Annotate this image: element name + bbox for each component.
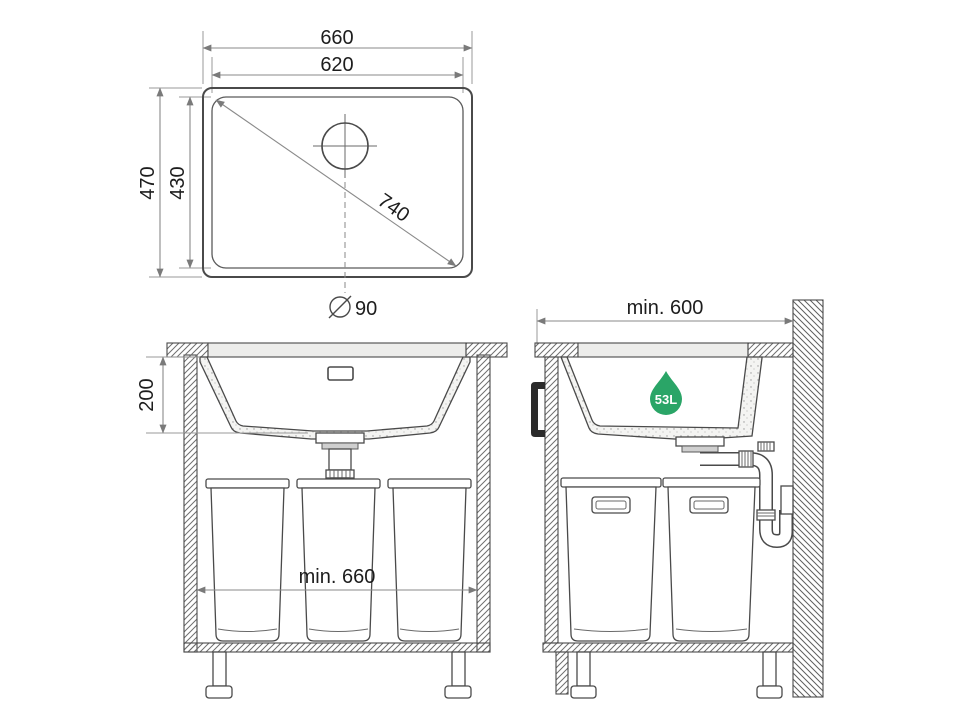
drain-gasket [322, 443, 358, 449]
bin-lid [663, 478, 760, 487]
inner-depth-label: 430 [167, 166, 189, 199]
capacity-badge: 53L [650, 371, 682, 415]
dimension-min-cabinet-depth: min. 600 [537, 297, 793, 345]
drain-diameter-callout: 90 [329, 296, 377, 320]
wall-pipe-plate [781, 486, 793, 514]
capacity-label: 53L [655, 392, 677, 407]
bin-handle [690, 497, 728, 513]
bin-lid [206, 479, 289, 488]
bin-lid [297, 479, 380, 488]
cabinet-door-panel [545, 357, 558, 643]
diameter-icon-slash [329, 296, 351, 318]
drain-gasket [682, 446, 718, 452]
cabinet-leg [213, 652, 226, 686]
leg-foot [757, 686, 782, 698]
min-cabinet-width-label: min. 660 [299, 566, 376, 588]
drain-diameter-label: 90 [355, 298, 377, 320]
plinth-panel [556, 652, 568, 694]
bin-body [393, 488, 466, 641]
leg-foot [571, 686, 596, 698]
drain-icon [313, 114, 377, 178]
cabinet-right-wall [477, 355, 490, 652]
cabinet-bottom-panel [184, 643, 490, 652]
bowl-depth-label: 200 [136, 378, 158, 411]
countertop-right-section [466, 343, 507, 357]
countertop-left-section [167, 343, 208, 357]
drain-flange [316, 433, 364, 443]
countertop-front-edge [208, 343, 466, 357]
bin-body [211, 488, 284, 641]
overflow-icon [328, 367, 353, 380]
drawing-canvas: 660 620 470 430 740 [0, 0, 960, 720]
drain-flange [676, 437, 724, 446]
pipe-stub-fitting [758, 442, 774, 451]
bin-lid [561, 478, 661, 487]
waste-bin [388, 479, 471, 641]
waste-bin [206, 479, 289, 641]
countertop-left-section [535, 343, 578, 357]
drain-tailpiece [329, 449, 351, 470]
waste-bin [561, 478, 661, 641]
top-view: 660 620 470 430 740 [137, 27, 472, 320]
countertop-span [578, 343, 748, 357]
side-view: min. 600 53L [531, 297, 823, 698]
diagonal-label: 740 [373, 190, 413, 227]
outer-depth-label: 470 [137, 166, 159, 199]
inner-width-label: 620 [320, 54, 353, 76]
waste-bin [663, 478, 760, 641]
min-cabinet-depth-label: min. 600 [627, 297, 704, 319]
cabinet-leg [763, 652, 776, 686]
cabinet-left-wall [184, 355, 197, 652]
leg-foot [445, 686, 471, 698]
door-handle-icon [531, 382, 545, 437]
dimension-inner-depth: 430 [167, 97, 211, 268]
bin-handle [592, 497, 630, 513]
cabinet-leg [452, 652, 465, 686]
front-view: 200 min. 660 [136, 343, 507, 698]
cabinet-leg [577, 652, 590, 686]
sink-technical-drawing: 660 620 470 430 740 [0, 0, 960, 720]
countertop-right-section [748, 343, 793, 357]
cabinet-bottom-panel [543, 643, 793, 652]
leg-foot [206, 686, 232, 698]
pipe-coupling [757, 510, 775, 520]
bin-lid [388, 479, 471, 488]
room-wall [793, 300, 823, 697]
bin-body [302, 488, 375, 641]
outer-width-label: 660 [320, 27, 353, 49]
waste-bin [297, 479, 380, 641]
drain-assembly [316, 433, 364, 483]
